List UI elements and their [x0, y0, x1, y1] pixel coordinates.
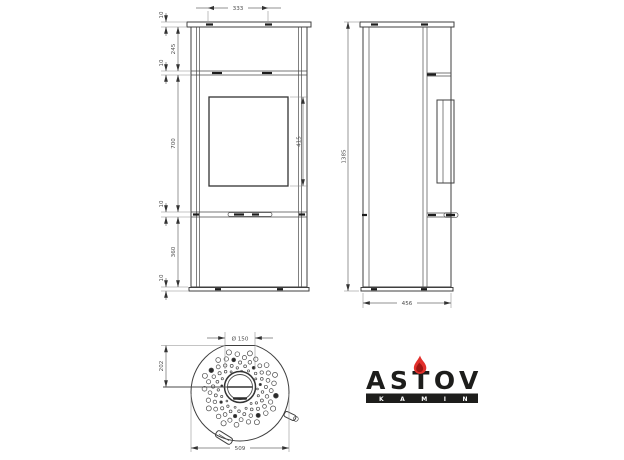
dim-front-lower-seam: 10: [159, 200, 165, 208]
dim-front-glass-height: 415: [296, 136, 302, 147]
dim-top-body-diameter: 509: [235, 446, 246, 452]
dim-side-depth: 456: [402, 301, 413, 307]
brand-logo: ASTOV KAMIN: [366, 356, 484, 404]
dim-top-center-offset: 202: [159, 361, 165, 372]
dim-front-base-section: 360: [171, 246, 177, 257]
front-door-handle: [228, 213, 272, 217]
dim-front-upper-panel: 245: [171, 43, 177, 54]
flame-icon: [414, 356, 426, 374]
front-base-plinth: [189, 288, 309, 292]
side-body: [360, 22, 458, 291]
dim-front-door-section: 700: [171, 138, 177, 149]
front-door-glass: [209, 97, 288, 186]
front-body: [187, 22, 311, 291]
front-dimension-lines: [161, 6, 308, 300]
dim-front-plate-thickness: 10: [159, 11, 165, 19]
side-body-outline: [363, 27, 451, 287]
dim-front-top-width: 333: [233, 6, 244, 12]
front-top-plate: [187, 22, 311, 27]
side-view: 1385 456: [341, 22, 458, 308]
dim-front-upper-seam: 10: [159, 59, 165, 67]
top-handle: [215, 430, 234, 445]
dim-top-flue-diameter: Ø 150: [232, 335, 249, 342]
technical-drawing-page: 333 10 245 10 700 10 360 10 415: [0, 0, 624, 460]
side-dimension-lines: [344, 22, 451, 308]
front-view: 333 10 245 10 700 10 360 10 415: [159, 4, 311, 300]
dim-front-plinth: 10: [159, 274, 165, 282]
top-view: Ø 150 202 509: [159, 332, 299, 452]
stove-drawing: 333 10 245 10 700 10 360 10 415: [0, 0, 624, 460]
brand-tagline: KAMIN: [379, 396, 484, 403]
dim-side-overall-height: 1385: [341, 149, 347, 164]
top-side-knob: [283, 411, 299, 423]
side-dimension-labels: 1385 456: [341, 149, 417, 307]
front-dimension-labels: 333 10 245 10 700 10 360 10 415: [159, 4, 302, 281]
